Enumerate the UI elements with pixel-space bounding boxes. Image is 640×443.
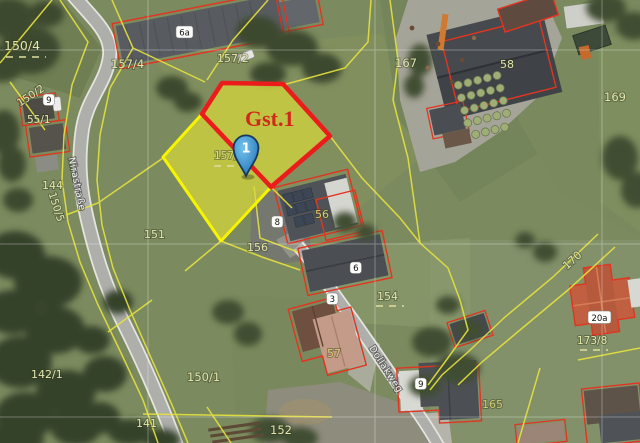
parcel-label-150-4: 150/4 xyxy=(4,38,40,53)
svg-text:6a: 6a xyxy=(179,29,190,39)
parcel-label-167: 167 xyxy=(395,56,417,70)
house-number-9-upper: 9 xyxy=(43,94,55,106)
marker-number: 1 xyxy=(241,142,250,157)
svg-text:20a: 20a xyxy=(591,314,607,324)
svg-text:9: 9 xyxy=(418,380,423,390)
house-number-3: 3 xyxy=(327,293,339,305)
svg-text:8: 8 xyxy=(275,218,280,228)
house-number-6: 6 xyxy=(350,262,362,274)
parcel-label-150-1: 150/1 xyxy=(187,370,220,384)
parcel-label-58: 58 xyxy=(500,58,514,71)
parcel-label-169: 169 xyxy=(604,90,626,104)
house-number-9-lower: 9 xyxy=(415,378,427,390)
highlight-parcel-label: Gst.1 xyxy=(245,106,295,131)
svg-text:9: 9 xyxy=(46,96,51,106)
parcel-label-144: 144 xyxy=(42,179,63,192)
house-number-6a: 6a xyxy=(176,26,193,39)
parcel-label-56: 56 xyxy=(315,208,329,221)
parcel-label-57: 57 xyxy=(327,347,341,360)
parcel-label-151: 151 xyxy=(144,228,165,241)
house-number-20a: 20a xyxy=(588,311,611,324)
parcel-label-154: 154 xyxy=(377,290,398,303)
parcel-label-142-1: 142/1 xyxy=(31,368,63,381)
house-number-8: 8 xyxy=(272,216,284,228)
svg-text:3: 3 xyxy=(330,295,335,305)
parcel-label-165: 165 xyxy=(482,398,503,411)
parcel-label-156: 156 xyxy=(247,241,268,254)
parcel-label-157-2: 157/2 xyxy=(217,52,249,65)
parcel-label-173-8: 173/8 xyxy=(577,335,607,347)
parcel-label-157-4: 157/4 xyxy=(111,57,144,71)
map-canvas[interactable]: 150/4 157/4 157/2 167 58 169 150/2 55/1 … xyxy=(0,0,640,443)
aerial-map[interactable]: 150/4 157/4 157/2 167 58 169 150/2 55/1 … xyxy=(0,0,640,443)
parcel-label-152: 152 xyxy=(270,423,292,437)
svg-text:6: 6 xyxy=(353,264,358,274)
parcel-label-141: 141 xyxy=(136,417,157,430)
parcel-label-55-1: 55/1 xyxy=(27,114,51,126)
